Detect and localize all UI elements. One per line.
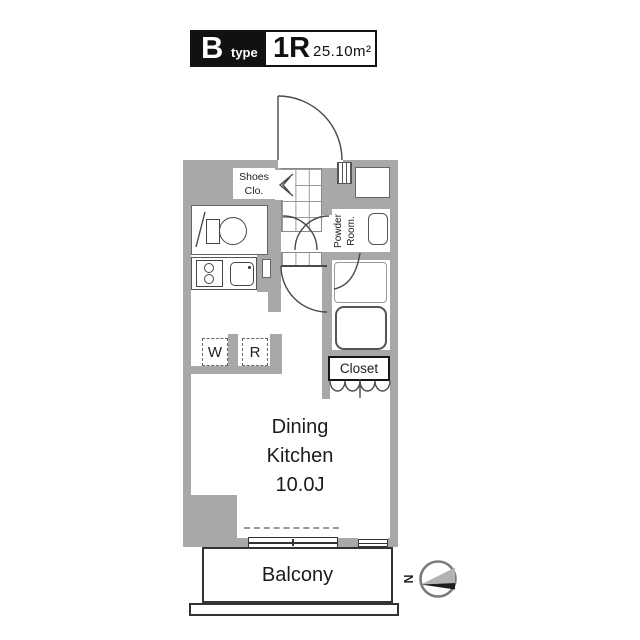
wall-powder-bath [332,252,398,260]
compass-ring [421,562,456,597]
bathtub-fixture [335,306,387,350]
closet-box: Closet [328,356,390,381]
washbasin-fixture [368,213,388,245]
wall-bottom-3 [388,538,398,547]
area-label: 25.10m² [313,43,372,60]
type-word: type [231,45,258,60]
washer-label: W [208,344,222,361]
shoes-closet-door [275,170,295,200]
closet-folding-door [330,381,390,391]
compass-needle-dark [421,583,455,590]
balcony-label: Balcony [262,564,333,587]
burner-icon [204,274,214,284]
entrance-door-arc [278,96,342,160]
meter-box [337,162,352,184]
wall-bottom-2 [338,538,358,547]
balcony: Balcony [202,547,393,603]
dining-kitchen-label: Dining Kitchen 10.0J [210,413,390,500]
layout-label: 1R [273,32,310,65]
toilet-tank [206,219,220,244]
floor-plan-page: B type 1R 25.10m² Shoes Clo. [0,0,640,640]
washer-slot: W [202,338,228,366]
powder-room-label: Powder Room. [332,209,362,253]
shoes-closet-label: Shoes Clo. [233,168,275,198]
layout-area-badge: 1R 25.10m² [264,30,377,67]
wall-wr-right [270,334,282,374]
wall-bath-west [322,252,332,356]
hall-step-tiles [281,252,322,266]
wall-top-left [183,160,278,168]
stove-fixture [196,260,223,287]
burner-icon [204,263,214,273]
type-badge: B type [190,30,264,67]
wall-left [183,160,191,547]
curtain-box-dashed-line [244,527,339,529]
balcony-slab [189,603,399,616]
sliding-window-tick [292,539,294,546]
north-label: N [402,572,416,586]
bathroom-floor [334,262,387,303]
pipe-space-box [355,167,390,198]
compass-icon [421,562,456,597]
wall-wr-mid [228,334,238,374]
toilet-fixture [219,217,247,245]
shoes-closet-box: Shoes Clo. [233,168,275,199]
faucet-icon [248,266,251,269]
small-window-rail [358,543,388,544]
wall-corner-block [183,495,237,547]
wall-ps-powder [332,199,398,209]
kitchen-slot [262,259,271,278]
fridge-label: R [250,344,261,361]
type-letter: B [201,30,223,66]
closet-label: Closet [340,361,378,376]
room-door-arc [281,266,327,312]
fridge-slot: R [242,338,268,366]
compass-needle-light [421,568,455,585]
